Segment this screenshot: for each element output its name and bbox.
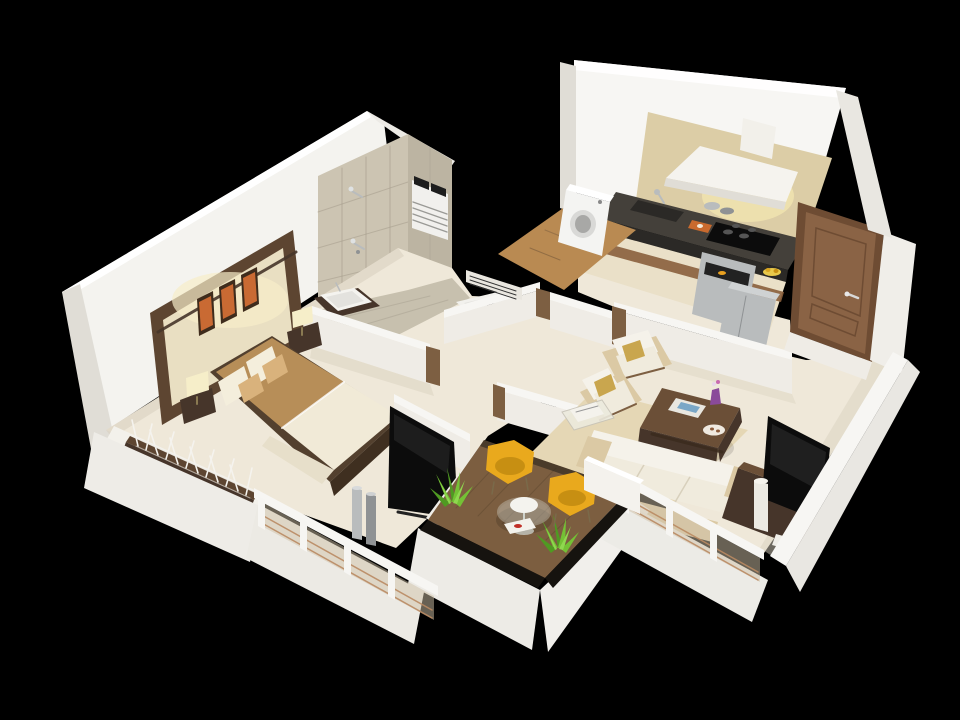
floorplan-svg: [0, 0, 960, 720]
balcony-table: [496, 497, 552, 535]
fruit-bowl: [763, 268, 781, 276]
apartment-3d-floorplan: [0, 0, 960, 720]
